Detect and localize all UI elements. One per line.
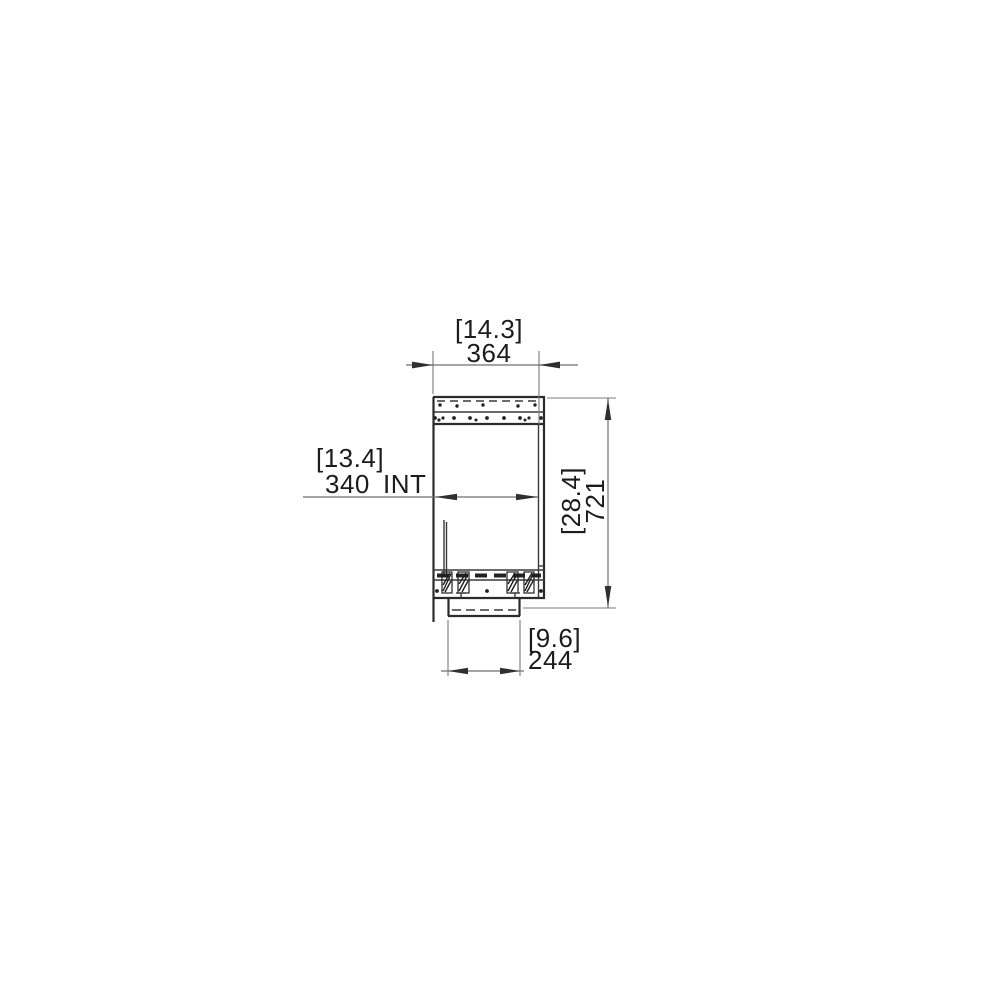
- base-tray: [448, 598, 520, 616]
- side-walls: [434, 397, 545, 622]
- dim-overall-height-value-label: 721: [580, 479, 610, 524]
- technical-drawing-canvas: [14.3] 364 [13.4] 340 INT [28.4] 721: [0, 0, 1000, 1000]
- drawing-page: [14.3] 364 [13.4] 340 INT [28.4] 721: [0, 0, 1000, 1000]
- fastener-dots-row-top: [438, 403, 536, 407]
- dim-overall-width: [14.3] 364: [406, 314, 578, 424]
- dim-base-width: [9.6] 244: [441, 620, 581, 676]
- fastener-dots-row-bottom: [433, 416, 543, 422]
- top-mounting-flange: [433, 397, 545, 424]
- dim-internal-width-suffix-label: INT: [383, 469, 426, 499]
- dim-internal-width-value-label: 340: [325, 469, 370, 499]
- bottom-burner-assembly: [433, 570, 545, 598]
- internal-rod: [444, 520, 447, 574]
- dim-overall-width-value-label: 364: [467, 338, 512, 368]
- unit-body: [433, 397, 545, 622]
- dim-internal-width: [13.4] 340 INT: [303, 443, 538, 500]
- dim-base-width-value-label: 244: [528, 645, 573, 675]
